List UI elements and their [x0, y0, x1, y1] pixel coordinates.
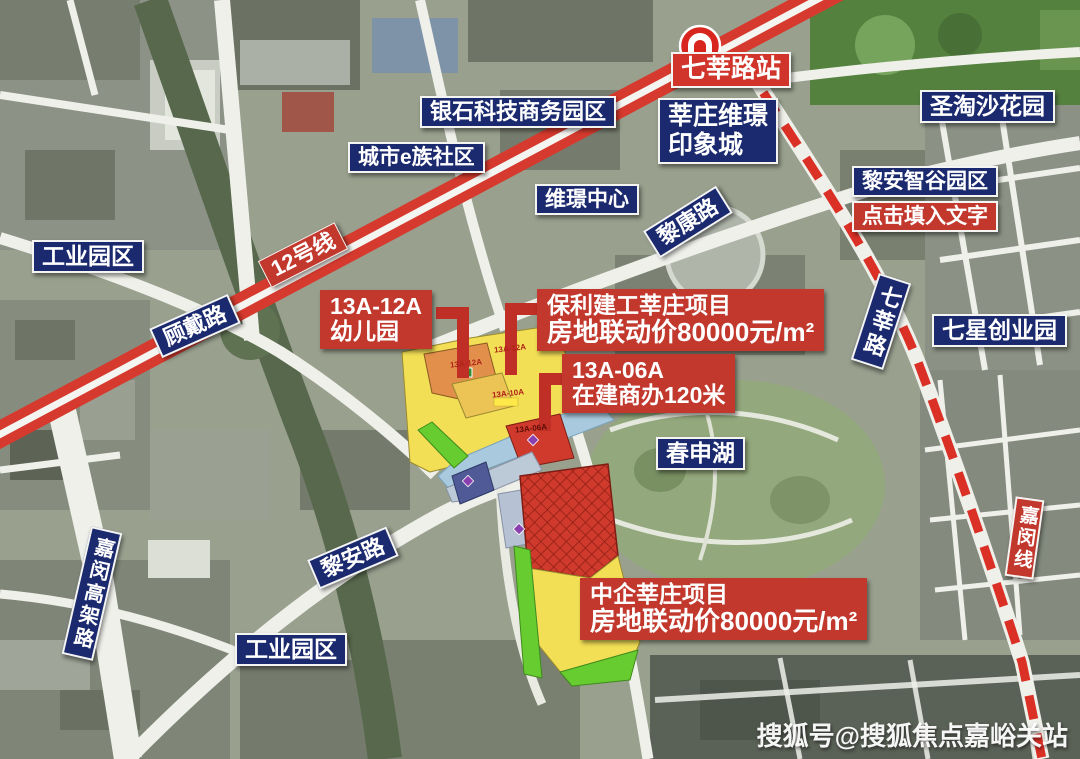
label-lian-smart-valley: 黎安智谷园区	[852, 166, 998, 197]
label-weijing-mall: 莘庄维璟 印象城	[658, 98, 778, 164]
label-yinshi-park: 银石科技商务园区	[420, 96, 616, 128]
callout-zhongqi-project: 中企莘庄项目 房地联动价80000元/m²	[580, 578, 867, 640]
watermark: 搜狐号@搜狐焦点嘉峪关站	[757, 716, 1068, 753]
label-sentosa-garden: 圣淘沙花园	[920, 90, 1055, 123]
callout-kindergarten: 13A-12A 幼儿园	[320, 290, 432, 349]
label-industrial-park-top: 工业园区	[32, 240, 144, 273]
label-city-e-community: 城市e族社区	[348, 142, 485, 173]
callout-office-tower: 13A-06A 在建商办120米	[562, 354, 735, 413]
label-industrial-park-bottom: 工业园区	[235, 633, 347, 666]
label-chunshen-lake: 春申湖	[656, 437, 745, 470]
plan-yellow-tag	[494, 398, 518, 406]
callout-baoli-project: 保利建工莘庄项目 房地联动价80000元/m²	[537, 289, 824, 351]
label-weijing-center: 维璟中心	[535, 184, 639, 215]
label-qixing-park: 七星创业园	[932, 314, 1067, 347]
plot-hatch-pattern	[520, 464, 618, 578]
map-canvas: 银石科技商务园区 城市e族社区 莘庄维璟 印象城 圣淘沙花园 黎安智谷园区 点击…	[0, 0, 1080, 759]
label-click-placeholder[interactable]: 点击填入文字	[852, 201, 998, 232]
label-qixin-station: 七莘路站	[671, 52, 791, 88]
